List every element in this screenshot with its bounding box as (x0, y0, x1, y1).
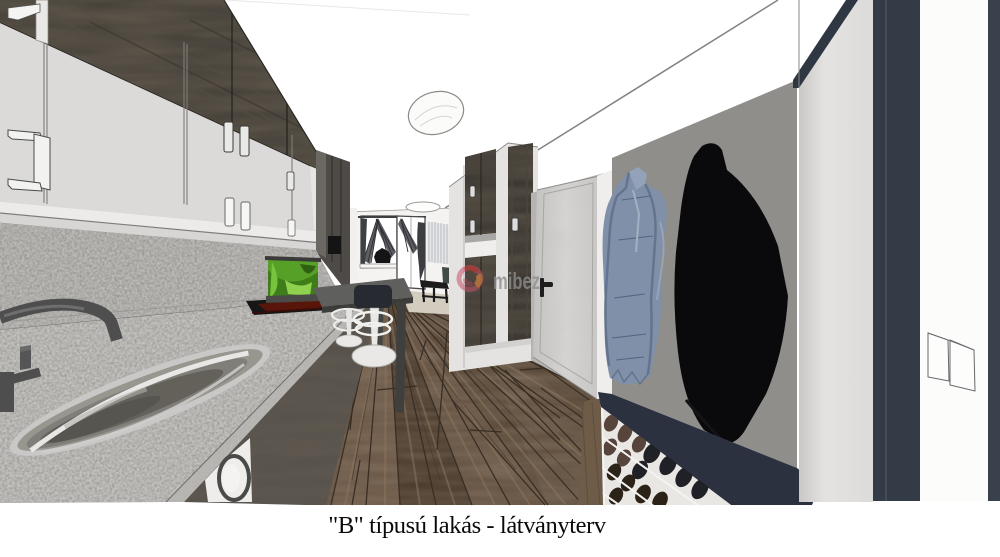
svg-text:mibez: mibez (493, 268, 540, 294)
